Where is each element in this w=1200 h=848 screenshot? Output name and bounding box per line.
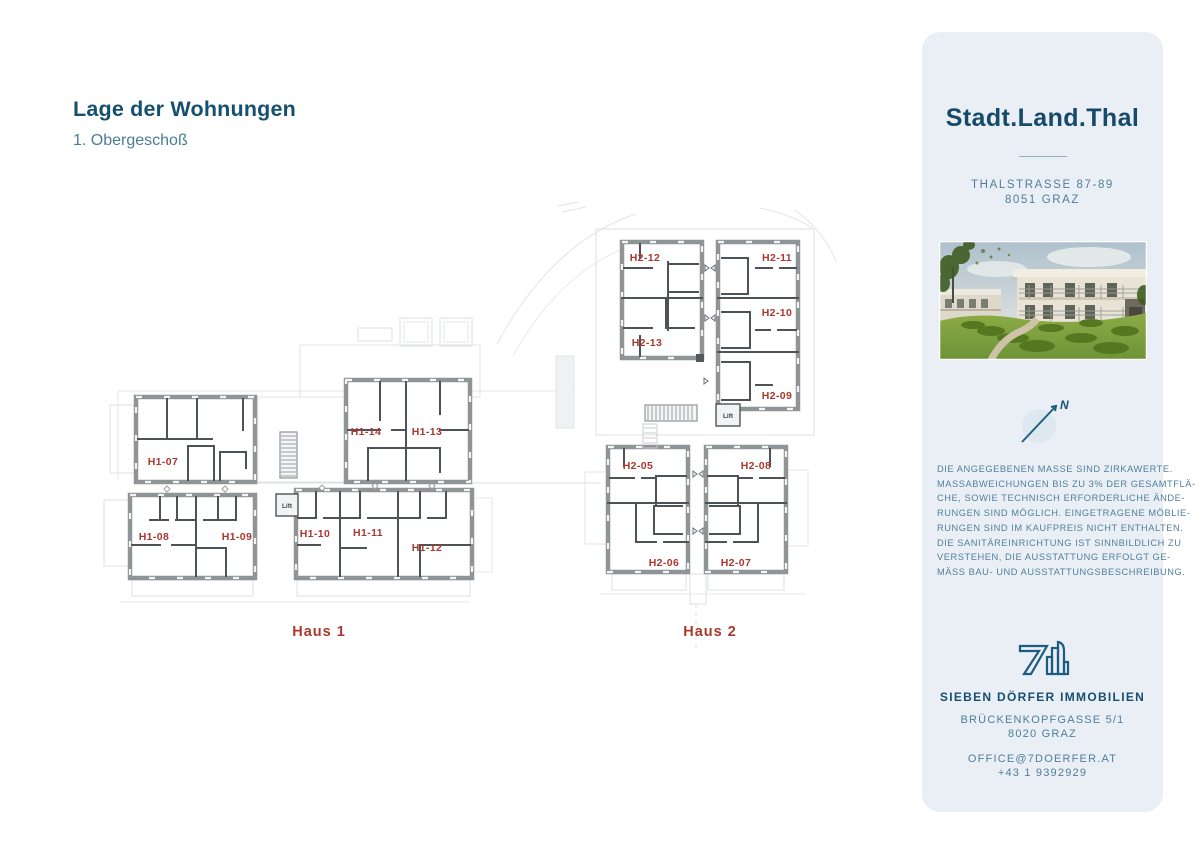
compass-north-label: N [1060, 398, 1069, 412]
unit-label-h1-13: H1-13 [412, 426, 443, 438]
haus2-blocks: Lift [608, 242, 798, 572]
haus2-lift-label: Lift [723, 413, 734, 420]
disclaimer-line: RUNGEN SIND IM KAUFPREIS NICHT ENTHALTEN… [937, 521, 1148, 536]
haus1-title: Haus 1 [292, 624, 346, 640]
disclaimer-text: DIE ANGEGEBENEN MASSE SIND ZIRKAWERTE. M… [937, 462, 1148, 580]
unit-label-h2-12: H2-12 [630, 252, 661, 264]
north-compass-icon: N [1007, 395, 1079, 447]
unit-label-h1-07: H1-07 [148, 456, 179, 468]
unit-label-h2-13: H2-13 [632, 337, 663, 349]
unit-label-h2-05: H2-05 [623, 460, 654, 472]
company-address: BRÜCKENKOPFGASSE 5/1 8020 GRAZ [922, 713, 1163, 742]
haus1-lift-label: Lift [282, 503, 293, 510]
unit-label-h1-11: H1-11 [353, 527, 383, 539]
haus2-stairs [643, 405, 697, 448]
project-address: THALSTRASSE 87-89 8051 GRAZ [922, 178, 1163, 208]
unit-label-h2-11: H2-11 [762, 252, 792, 264]
building-rendering-photo [939, 241, 1147, 360]
brand-name: Stadt.Land.Thal [922, 104, 1163, 133]
haus2-wall-pier [696, 354, 704, 362]
unit-label-h1-14: H1-14 [351, 426, 382, 438]
company-phone: +43 1 9392929 [922, 766, 1163, 781]
project-address-line1: THALSTRASSE 87-89 [922, 178, 1163, 193]
disclaimer-line: RUNGEN SIND MÖGLICH. EINGETRAGENE MÖBLIE… [937, 506, 1148, 521]
unit-label-h2-08: H2-08 [741, 460, 772, 472]
project-address-line2: 8051 GRAZ [922, 193, 1163, 208]
unit-label-h1-12: H1-12 [412, 542, 443, 554]
unit-label-h1-10: H1-10 [300, 528, 331, 540]
disclaimer-line: CHE, SOWIE TECHNISCH ERFORDERLICHE ÄNDE- [937, 491, 1148, 506]
company-contact: OFFICE@7DOERFER.AT +43 1 9392929 [922, 752, 1163, 781]
unit-label-h1-09: H1-09 [222, 531, 253, 543]
sieben-doerfer-logo-icon [1016, 633, 1070, 677]
disclaimer-line: MÄSS BAU- UND AUSSTATTUNGSBESCHREIBUNG. [937, 565, 1148, 580]
unit-label-h2-09: H2-09 [762, 390, 793, 402]
company-address-line2: 8020 GRAZ [922, 727, 1163, 742]
unit-label-h2-07: H2-07 [721, 557, 752, 569]
disclaimer-line: MASSABWEICHUNGEN BIS ZU 3% DER GESAMTFLÄ… [937, 477, 1148, 492]
brand-divider [1019, 156, 1067, 157]
disclaimer-line: VERSTEHEN, DIE AUSSTATTUNG ERFOLGT GE- [937, 550, 1148, 565]
haus1-stairs [280, 432, 297, 478]
unit-label-h2-06: H2-06 [649, 557, 680, 569]
unit-label-h2-10: H2-10 [762, 307, 793, 319]
haus1-lift: Lift [276, 494, 298, 516]
company-address-line1: BRÜCKENKOPFGASSE 5/1 [922, 713, 1163, 728]
unit-label-h1-08: H1-08 [139, 531, 170, 543]
company-email: OFFICE@7DOERFER.AT [922, 752, 1163, 767]
haus2-lift: Lift [716, 404, 740, 426]
company-name: SIEBEN DÖRFER IMMOBILIEN [922, 690, 1163, 704]
disclaimer-line: DIE SANITÄREINRICHTUNG IST SINNBILDLICH … [937, 536, 1148, 551]
haus2-title: Haus 2 [683, 624, 737, 640]
disclaimer-line: DIE ANGEGEBENEN MASSE SIND ZIRKAWERTE. [937, 462, 1148, 477]
project-info-card: Stadt.Land.Thal THALSTRASSE 87-89 8051 G… [922, 32, 1163, 812]
